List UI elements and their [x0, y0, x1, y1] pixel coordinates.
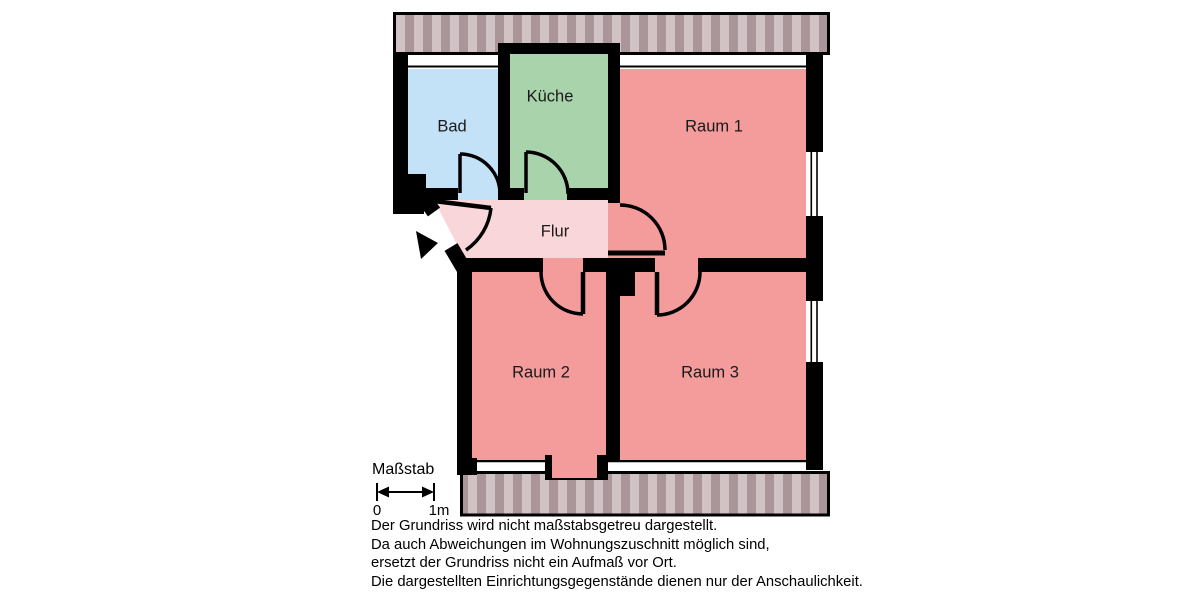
disclaimer-line-1: Der Grundriss wird nicht maßstabsgetreu …: [371, 517, 863, 536]
wall-raum2-left-corner: [457, 458, 477, 475]
wall-bad-notch: [408, 174, 426, 190]
wall-kueche-top: [498, 43, 620, 54]
wall-raum3-stub: [620, 272, 635, 296]
window-raum1-icon: [806, 152, 823, 216]
window-raum3-icon: [806, 301, 823, 362]
room-bad-door-gap: [458, 186, 498, 202]
floor-plan-page: Bad Küche Raum 1 Flur Raum 2 Raum 3 Maßs…: [0, 0, 1200, 600]
room-raum1: [608, 69, 806, 258]
room-kueche-door-gap: [524, 186, 567, 202]
wall-right: [806, 55, 823, 470]
room-label-raum2: Raum 2: [512, 364, 570, 383]
disclaimer-line-2: Da auch Abweichungen im Wohnungszuschnit…: [371, 536, 863, 555]
scale-arrowhead-right: [422, 487, 434, 498]
scale-title: Maßstab: [372, 461, 434, 479]
disclaimer-line-3: ersetzt der Grundriss nicht ein Aufmaß v…: [371, 554, 863, 573]
disclaimer-text: Der Grundriss wird nicht maßstabsgetreu …: [371, 517, 863, 591]
bottom-hatch-band: [462, 473, 829, 516]
wall-entrance-diagonal-top: [421, 194, 434, 212]
entrance-arrow-icon: [416, 231, 438, 259]
wall-flur-raum1: [608, 43, 620, 203]
room-label-raum3: Raum 3: [681, 364, 739, 383]
room-label-flur: Flur: [541, 223, 569, 242]
wall-mid-right: [698, 258, 823, 272]
raum2-bay-floor: [552, 444, 597, 478]
wall-kueche-left: [498, 43, 510, 200]
room-raum3: [606, 258, 806, 460]
scale-bar: [377, 483, 434, 501]
wall-kueche-bottom-right: [567, 188, 608, 200]
disclaimer-line-4: Die dargestellten Einrichtungsgegenständ…: [371, 573, 863, 592]
floor-plan-drawing: [0, 0, 1200, 600]
scale-arrowhead-left: [377, 487, 389, 498]
wall-raum2-left: [457, 258, 472, 460]
wall-raum2-raum3: [606, 258, 620, 461]
wall-kueche-bottom-left: [510, 188, 524, 200]
room-label-bad: Bad: [437, 118, 466, 137]
room-label-kueche: Küche: [527, 88, 574, 107]
room-label-raum1: Raum 1: [685, 118, 743, 137]
